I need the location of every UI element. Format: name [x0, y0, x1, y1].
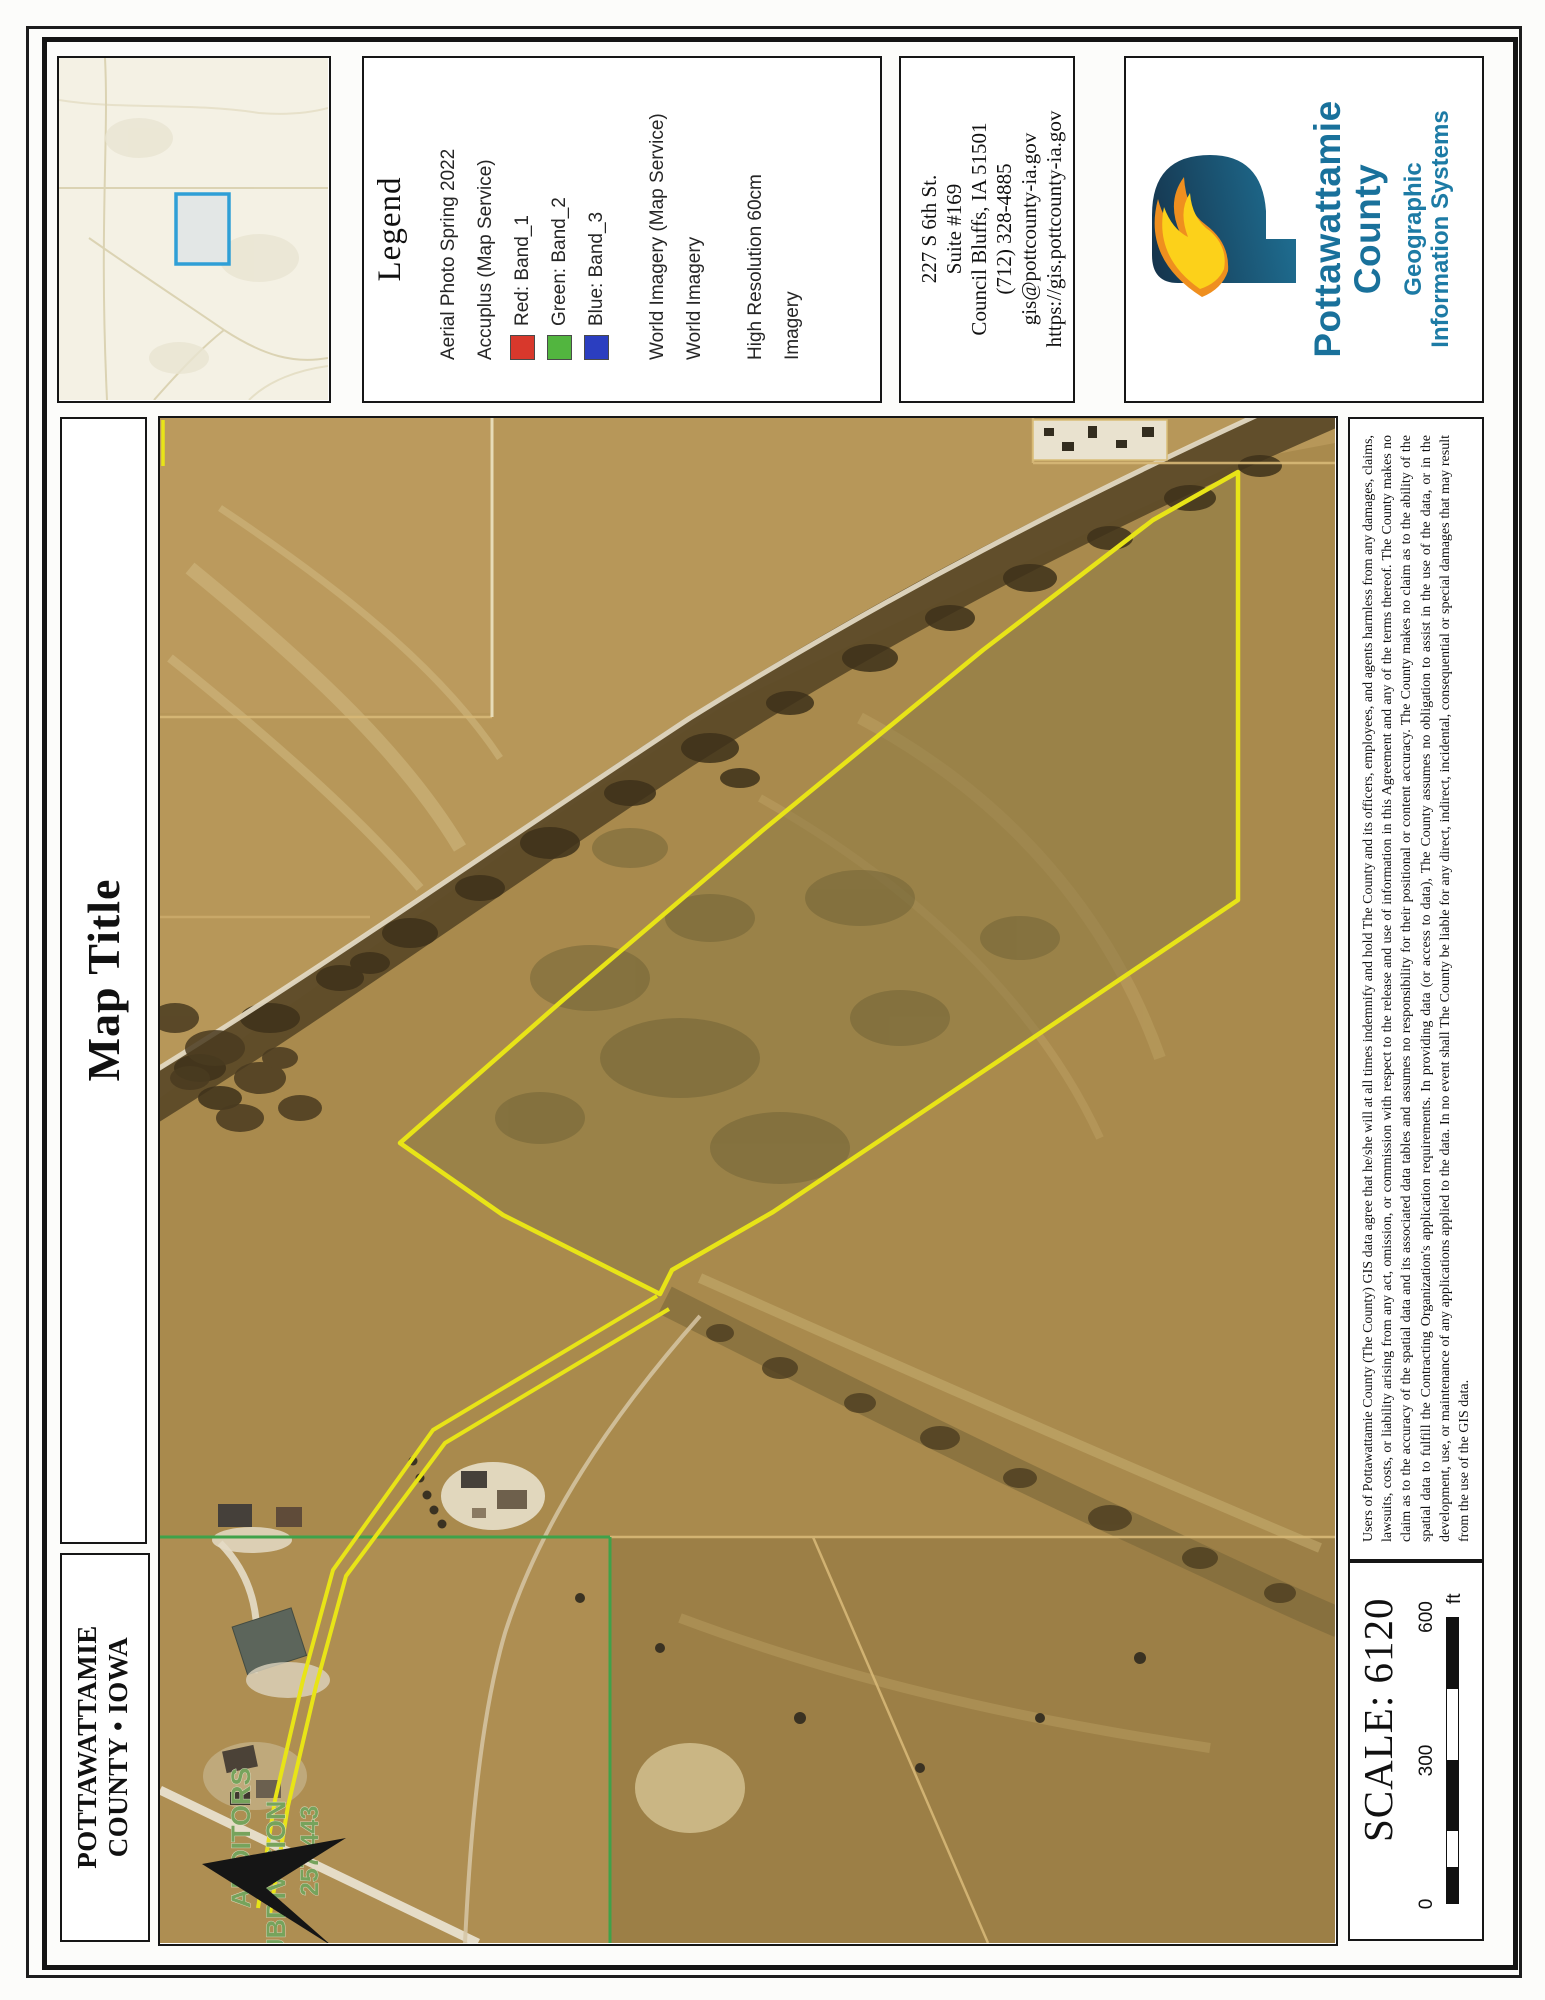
- contact-address-line: Council Bluffs, IA 51501: [967, 58, 992, 400]
- scale-box: SCALE: 6120 0300600 ft: [1348, 1561, 1484, 1941]
- logo-org-name: Pottawattamie County: [1308, 100, 1388, 357]
- contact-address: 227 S 6th St.Suite #169Council Bluffs, I…: [901, 58, 1067, 400]
- logo-dept-line1: Geographic: [1400, 162, 1427, 295]
- legend-entry-label: Red: Band_1: [512, 215, 534, 326]
- scale-tick: 0: [1416, 1899, 1438, 1910]
- legend-entry: World Imagery (Map Service): [644, 58, 671, 400]
- aerial-map-graphic: AUDITORS SUBDIVISION 257/443: [160, 418, 1335, 1943]
- contact-address-line: Suite #169: [942, 58, 967, 400]
- legend-entry-label: Imagery: [782, 291, 804, 360]
- scale-label: SCALE: 6120: [1354, 1598, 1402, 1843]
- logo-dept-line2: Information Systems: [1427, 110, 1454, 347]
- map-area[interactable]: AUDITORS SUBDIVISION 257/443: [158, 416, 1338, 1946]
- logo-box: Pottawattamie County Geographic Informat…: [1124, 56, 1484, 403]
- legend-entries: Aerial Photo Spring 2022Accuplus (Map Se…: [435, 58, 806, 400]
- disclaimer-box: Users of Pottawattamie County (The Count…: [1348, 417, 1484, 1561]
- disclaimer-text: Users of Pottawattamie County (The Count…: [1350, 419, 1474, 1558]
- legend-entry: Imagery: [779, 58, 806, 400]
- legend-entry-label: High Resolution 60cm: [745, 174, 767, 360]
- scale-bar-group: 0300600 ft: [1416, 1617, 1476, 1904]
- legend-entry: High Resolution 60cm: [742, 58, 769, 400]
- legend-swatch: [547, 335, 572, 360]
- contact-address-line: gis@pottcounty-ia.gov: [1017, 58, 1042, 400]
- legend-entry-label: Blue: Band_3: [586, 212, 608, 326]
- legend-entry: Aerial Photo Spring 2022: [435, 58, 462, 400]
- legend-entry: Green: Band_2: [546, 58, 573, 400]
- contact-address-line: https://gis.pottcounty-ia.gov: [1042, 58, 1067, 400]
- legend-entry-label: World Imagery (Map Service): [647, 113, 669, 360]
- logo-org-line1: Pottawattamie: [1307, 100, 1348, 357]
- legend-swatch: [584, 335, 609, 360]
- scale-unit: ft: [1444, 1593, 1466, 1604]
- county-line1: POTTAWATTAMIE: [72, 1555, 103, 1939]
- legend-title: Legend: [372, 58, 409, 400]
- scale-bar: [1446, 1617, 1459, 1904]
- legend-entry: Accuplus (Map Service): [472, 58, 499, 400]
- farmstead-mid: [441, 1462, 545, 1530]
- inset-overview-map: [57, 56, 331, 403]
- legend-entry-label: Aerial Photo Spring 2022: [438, 149, 460, 360]
- farmstead-top-right: [1033, 420, 1167, 460]
- county-line2: COUNTY • IOWA: [103, 1555, 134, 1939]
- legend-entry-label: World Imagery: [684, 237, 706, 360]
- map-title: Map Title: [77, 879, 130, 1082]
- inset-map-graphic: [59, 58, 328, 400]
- map-title-box: Map Title: [60, 417, 147, 1544]
- logo-org-line2: County: [1347, 164, 1388, 294]
- legend-entry-label: Green: Band_2: [549, 197, 571, 326]
- legend-entry-label: Accuplus (Map Service): [475, 159, 497, 360]
- county-logo-icon: [1136, 141, 1304, 317]
- logo-dept-name: Geographic Information Systems: [1400, 110, 1454, 347]
- legend-entry: Blue: Band_3: [583, 58, 610, 400]
- legend-swatch: [510, 335, 535, 360]
- county-title: POTTAWATTAMIE COUNTY • IOWA: [62, 1555, 150, 1939]
- inset-extent-highlight: [176, 194, 229, 264]
- legend-entry: World Imagery: [681, 58, 708, 400]
- legend-entry: Red: Band_1: [509, 58, 536, 400]
- legend-box: Legend Aerial Photo Spring 2022Accuplus …: [362, 56, 882, 403]
- contact-address-line: (712) 328-4885: [992, 58, 1017, 400]
- county-title-box: POTTAWATTAMIE COUNTY • IOWA: [60, 1553, 150, 1942]
- scale-tick: 600: [1416, 1601, 1438, 1633]
- scale-tick: 300: [1416, 1745, 1438, 1777]
- map-document-page: Legend Aerial Photo Spring 2022Accuplus …: [0, 0, 1545, 2000]
- contact-address-line: 227 S 6th St.: [917, 58, 942, 400]
- contact-box: 227 S 6th St.Suite #169Council Bluffs, I…: [899, 56, 1075, 403]
